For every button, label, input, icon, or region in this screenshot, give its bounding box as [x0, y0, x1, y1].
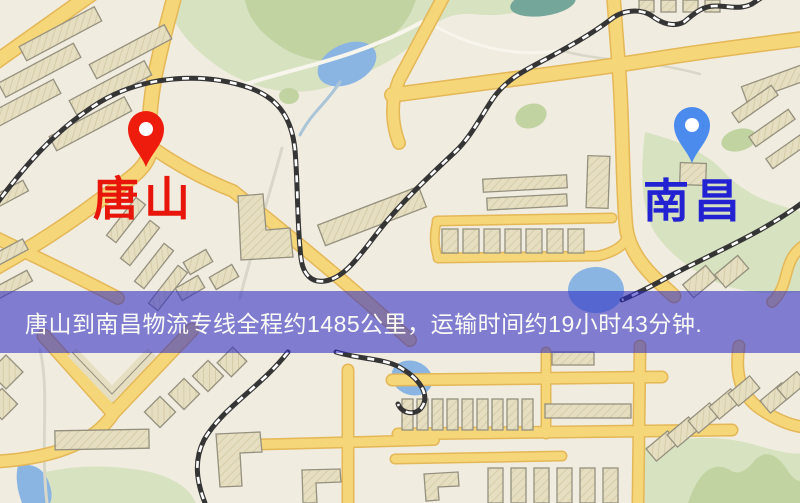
route-info-banner: 唐山到南昌物流专线全程约1485公里，运输时间约19小时43分钟. [0, 291, 800, 353]
route-info-text: 唐山到南昌物流专线全程约1485公里，运输时间约19小时43分钟. [0, 305, 702, 339]
destination-city-label: 南昌 [643, 178, 745, 224]
origin-city-label: 唐山 [93, 176, 195, 222]
origin-pin-icon[interactable] [126, 110, 166, 168]
map-canvas [0, 0, 800, 503]
map[interactable]: 唐山 南昌 唐山到南昌物流专线全程约1485公里，运输时间约19小时43分钟. [0, 0, 800, 503]
destination-pin-icon[interactable] [672, 106, 712, 164]
